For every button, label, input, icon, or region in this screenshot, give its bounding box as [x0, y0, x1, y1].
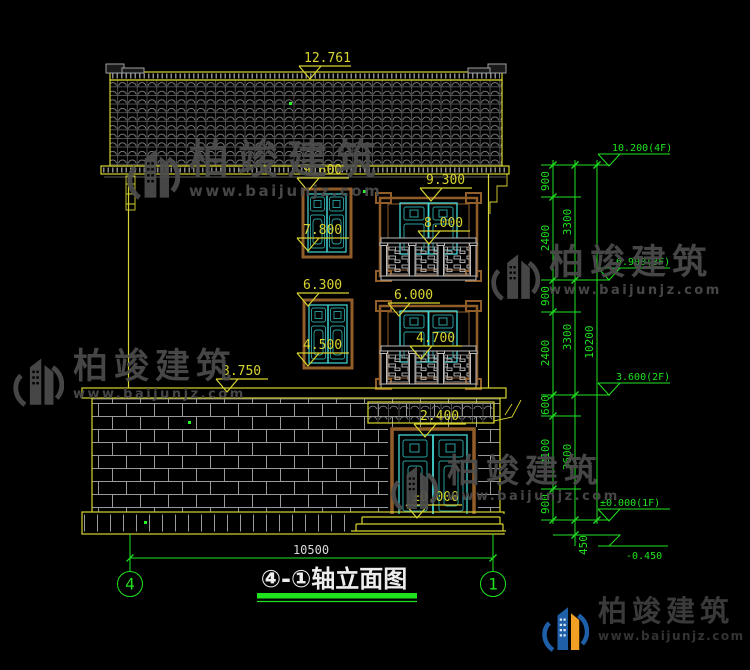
level-markers: 10.200(4F) 6.900(3F) 3.600(2F) ±0.000(1F…: [598, 143, 672, 562]
dim-w2t: 6.300: [303, 278, 342, 293]
dim-door: 2.400: [420, 409, 459, 424]
level-3f-text: 6.900(3F): [616, 257, 670, 268]
dim-w3b: 7.800: [303, 223, 342, 238]
chain-3600: 3600: [561, 444, 574, 471]
level-4f: 10.200(4F): [598, 143, 672, 166]
level-1f-text: ±0.000(1F): [600, 498, 660, 509]
dim-10500: 10500: [293, 543, 329, 557]
elev-w3t: 9.600: [297, 163, 349, 191]
level-3f: 6.900(3F): [598, 257, 670, 280]
chain-600: 600: [539, 395, 552, 415]
window-2f: [304, 300, 352, 368]
chain-2400a: 2400: [539, 225, 552, 252]
level-neg-text: -0.450: [626, 551, 662, 562]
ridge-ornament-right: [468, 64, 506, 73]
level-2f: 3.600(2F): [598, 372, 670, 395]
chain-3300b: 3300: [561, 324, 574, 351]
elevation-canvas: 12.761 9.600 9.300 7.800 8.000 6.300 6.0…: [0, 0, 750, 670]
level-1f: ±0.000(1F): [598, 498, 670, 521]
dim-b3r: 8.000: [424, 216, 463, 231]
level-2f-text: 3.600(2F): [616, 372, 670, 383]
drawing-title: ④-①轴立面图: [257, 565, 417, 602]
chain-900a: 900: [539, 171, 552, 191]
chain-450: 450: [577, 535, 590, 555]
dim-b2r: 4.700: [416, 331, 455, 346]
dim-eave: 3.750: [222, 364, 261, 379]
elev-w3b: 7.800: [297, 223, 349, 251]
main-roof: [101, 64, 509, 177]
level-neg: -0.450: [598, 535, 668, 562]
chain-3300a: 3300: [561, 209, 574, 236]
balcony-3f: [376, 193, 481, 281]
dim-b3t: 9.300: [426, 173, 465, 188]
entrance-steps: [350, 514, 507, 533]
dim-b2t: 6.000: [394, 288, 433, 303]
title-text: ④-①轴立面图: [261, 565, 408, 593]
axis-1-label: 1: [488, 575, 498, 594]
ridge-ornament-left: [106, 64, 144, 73]
dim-w3t: 9.600: [303, 163, 342, 178]
chain-10200: 10200: [583, 325, 596, 358]
dim-ridge: 12.761: [304, 51, 351, 66]
second-floor-band: [82, 388, 506, 398]
chain-2100: 2100: [539, 439, 552, 466]
dim-zero: ±0.000: [412, 490, 459, 505]
roof-tiles: [110, 80, 502, 166]
axis-4-label: 4: [125, 575, 135, 594]
level-4f-text: 10.200(4F): [612, 143, 672, 154]
chain-900c: 900: [539, 494, 552, 514]
eave-corbel-right: [490, 174, 507, 214]
chain-2400b: 2400: [539, 340, 552, 367]
entrance-door: [388, 427, 478, 521]
right-dimension-chain: 900 2400 900 2400 600 2100 900 3300 3300…: [539, 160, 612, 555]
elev-w2t: 6.300: [297, 278, 349, 306]
chain-900b: 900: [539, 286, 552, 306]
cad-elevation-drawing: 12.761 9.600 9.300 7.800 8.000 6.300 6.0…: [0, 0, 750, 670]
dim-w2b: 4.500: [303, 338, 342, 353]
downspout: [126, 176, 135, 210]
elev-w2b: 4.500: [297, 338, 349, 366]
